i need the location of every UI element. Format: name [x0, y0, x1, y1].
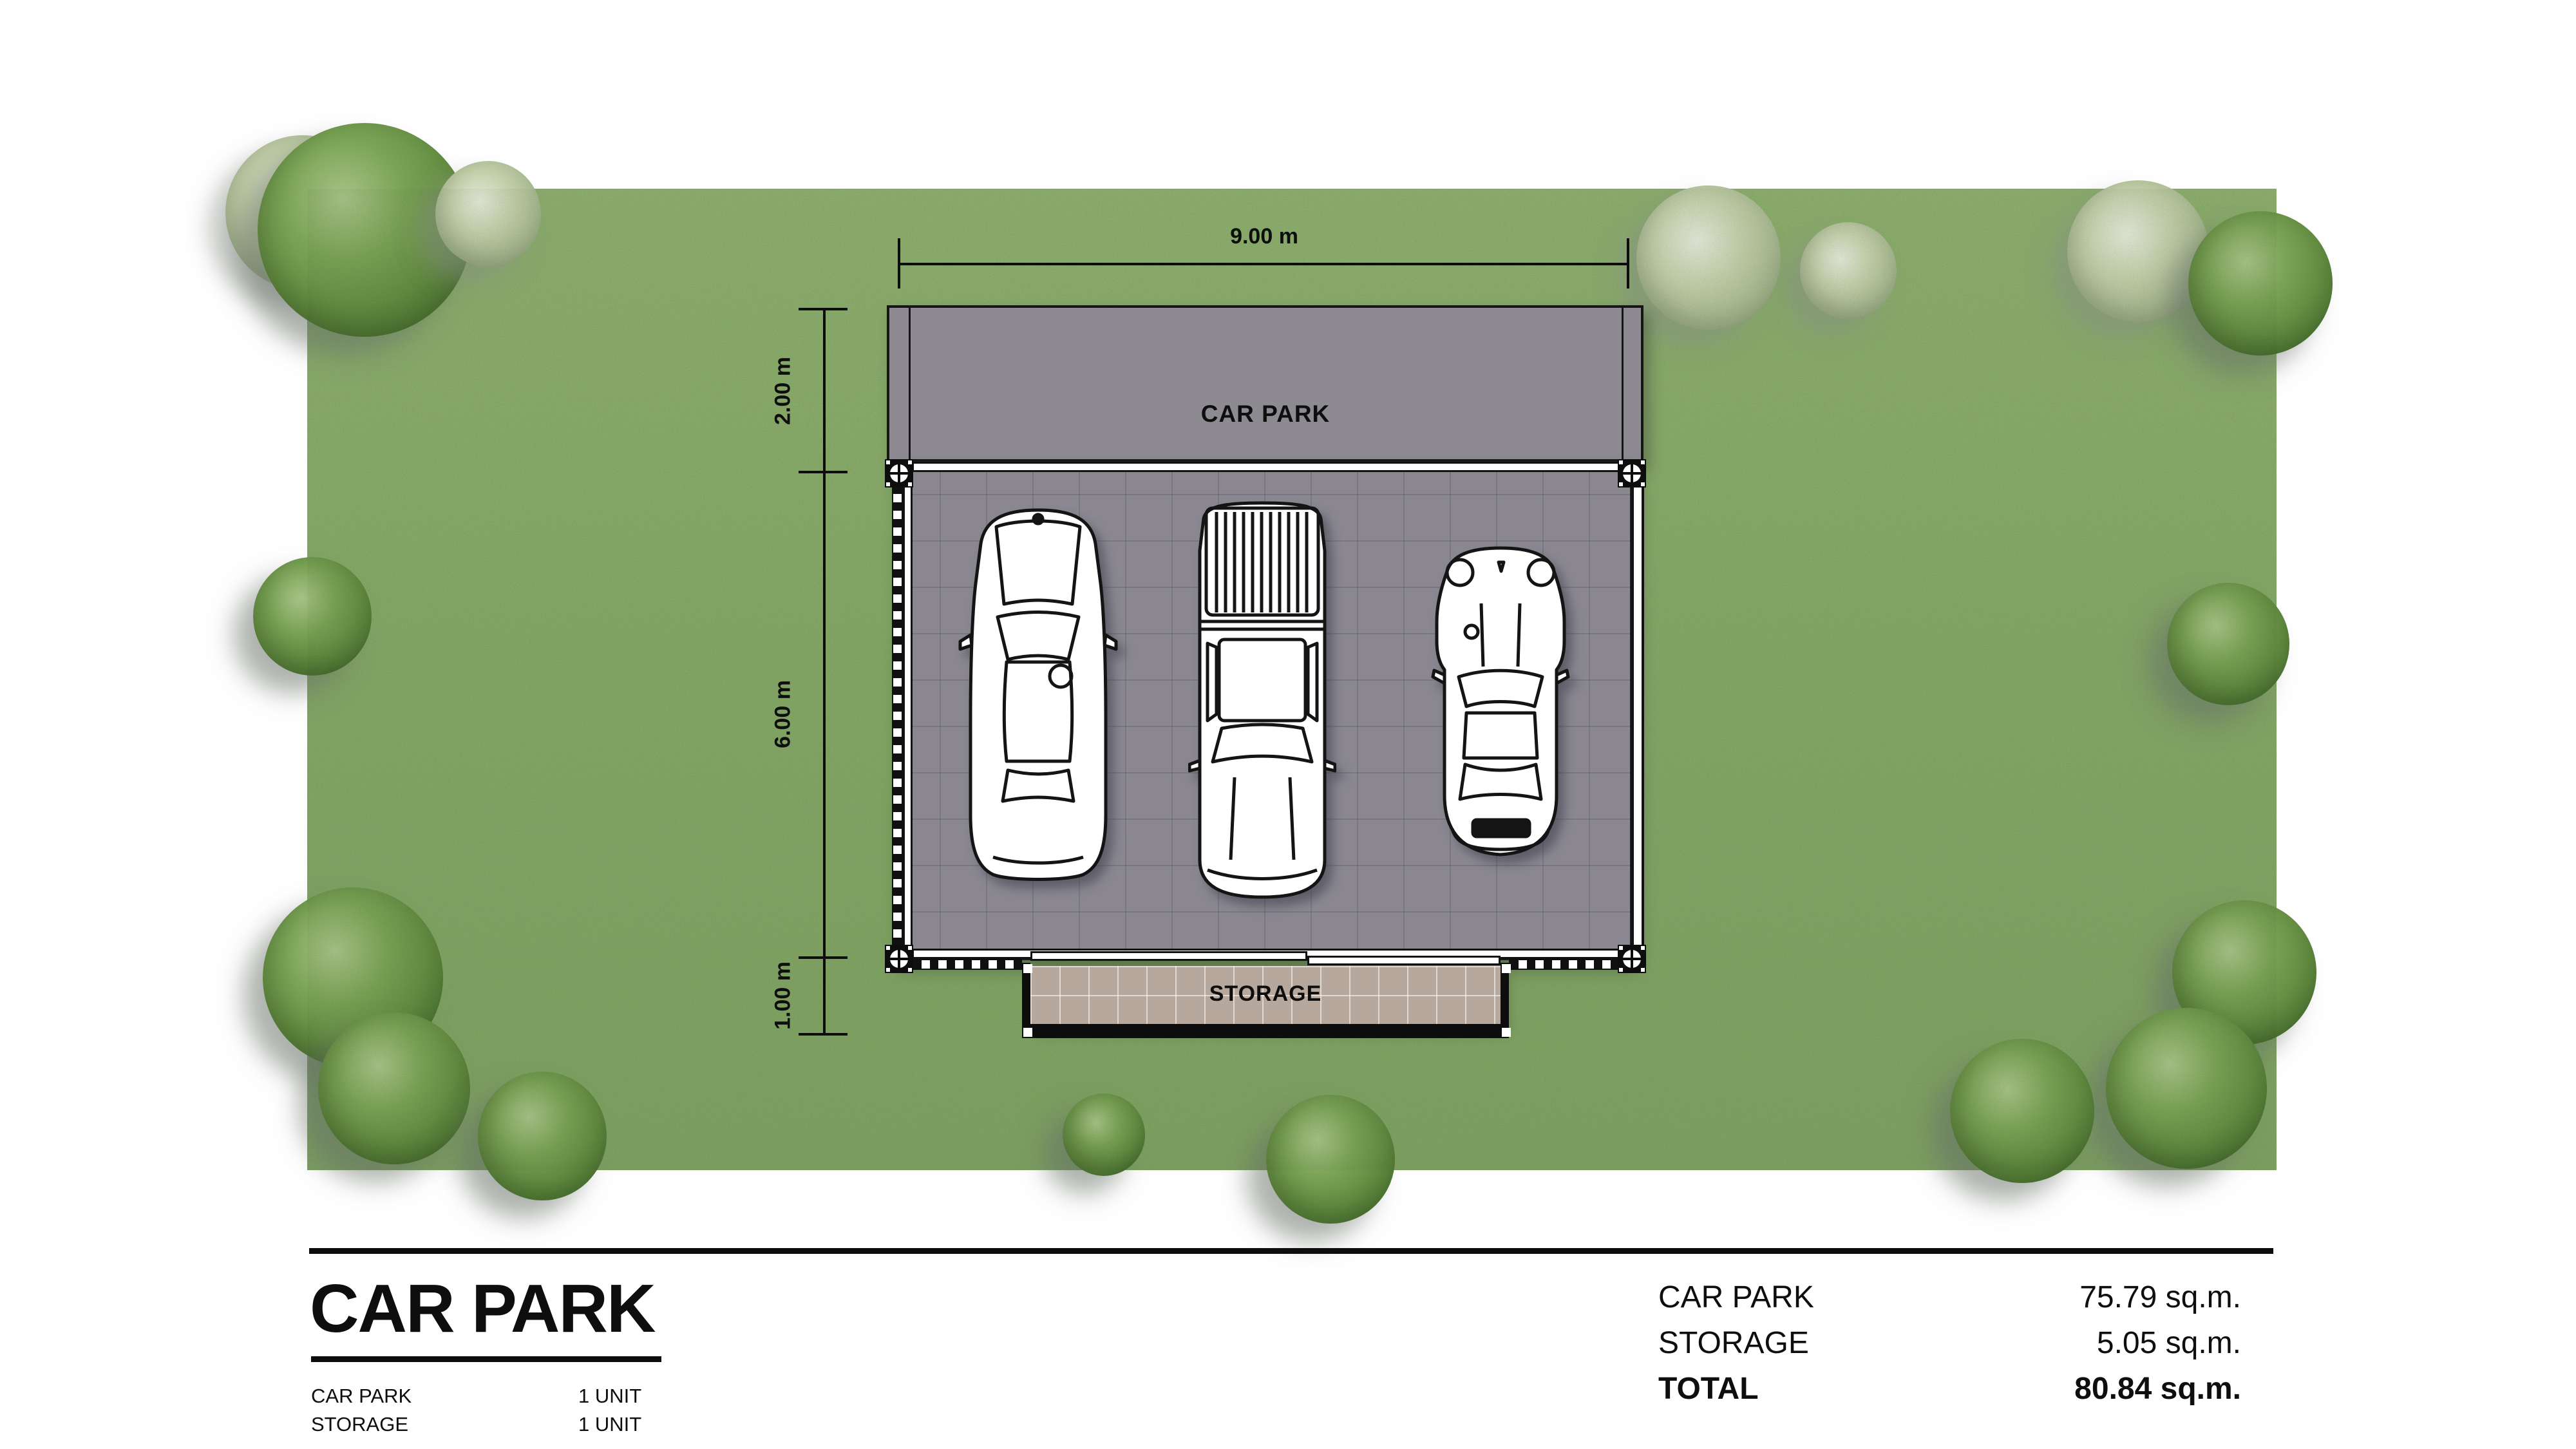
- left-edge-beam: [903, 485, 913, 947]
- car-park-roof: [887, 305, 1643, 462]
- dimension-label-roof-depth: 2.00 m: [771, 357, 796, 425]
- tree-icon: [435, 161, 541, 267]
- storage-post: [1502, 964, 1511, 973]
- dimension-tick: [799, 956, 848, 959]
- dimension-label-storage-depth: 1.00 m: [771, 961, 796, 1030]
- tree-icon: [318, 1012, 470, 1164]
- dimension-line-left: [823, 308, 826, 1036]
- area-row-label-total: TOTAL: [1658, 1371, 1759, 1406]
- dimension-label-width: 9.00 m: [1230, 224, 1298, 249]
- dimension-label-slab-depth: 6.00 m: [771, 680, 796, 748]
- column-marker-icon: [1618, 945, 1646, 973]
- sports-car-icon: [1426, 544, 1575, 860]
- tree-icon: [478, 1072, 607, 1200]
- site-plan-canvas: CAR PARK: [0, 0, 2576, 1449]
- storage-label: STORAGE: [1209, 981, 1322, 1007]
- car-park-roof-label: CAR PARK: [1201, 401, 1331, 428]
- area-row-label: STORAGE: [1658, 1325, 1809, 1361]
- dimension-tick: [1627, 238, 1629, 289]
- tree-icon: [1266, 1095, 1395, 1224]
- dimension-tick: [799, 1033, 848, 1036]
- column-marker-icon: [885, 945, 913, 973]
- tree-icon: [2167, 583, 2289, 705]
- storage-post: [1023, 964, 1032, 973]
- storage-door-panel: [1307, 956, 1501, 965]
- right-edge-beam: [1631, 485, 1644, 947]
- tree-icon: [1636, 185, 1781, 330]
- tree-icon: [2106, 1008, 2267, 1169]
- area-row-value: 75.79 sq.m.: [1906, 1280, 2241, 1315]
- roof-joint-line: [1622, 308, 1624, 459]
- tree-icon: [1950, 1039, 2094, 1183]
- storage-door-panel: [1030, 951, 1307, 961]
- pickup-truck-icon: [1188, 499, 1336, 902]
- legend-value-car-park: 1 UNIT: [578, 1385, 641, 1408]
- storage-post: [1502, 1028, 1511, 1037]
- dimension-line-top: [899, 263, 1629, 265]
- storage-wall-bottom: [1022, 1024, 1509, 1038]
- area-row-label: CAR PARK: [1658, 1280, 1814, 1315]
- column-marker-icon: [885, 459, 913, 488]
- area-row-value-total: 80.84 sq.m.: [1906, 1371, 2241, 1406]
- tree-icon: [2188, 211, 2333, 355]
- divider-bar: [309, 1248, 2273, 1254]
- storage-post: [1023, 1028, 1032, 1037]
- tree-icon: [1063, 1094, 1145, 1176]
- tree-icon: [1800, 222, 1897, 319]
- tree-icon: [2067, 180, 2209, 322]
- legend-label-storage: STORAGE: [311, 1413, 408, 1436]
- title-underline: [311, 1356, 661, 1362]
- dimension-tick: [898, 238, 900, 289]
- sedan-car-icon: [958, 506, 1119, 886]
- page-title: CAR PARK: [310, 1270, 655, 1348]
- column-marker-icon: [1618, 459, 1646, 488]
- area-row-value: 5.05 sq.m.: [1906, 1325, 2241, 1361]
- dimension-tick: [799, 471, 848, 473]
- legend-label-car-park: CAR PARK: [311, 1385, 412, 1408]
- dimension-tick: [799, 308, 848, 310]
- bottom-edge-hatch-right: [1509, 959, 1622, 970]
- roof-joint-line: [909, 308, 911, 459]
- tree-icon: [253, 557, 372, 676]
- left-edge-hatch: [892, 485, 903, 947]
- top-beam: [912, 462, 1620, 472]
- bottom-edge-hatch-left: [912, 959, 1022, 970]
- legend-value-storage: 1 UNIT: [578, 1413, 641, 1436]
